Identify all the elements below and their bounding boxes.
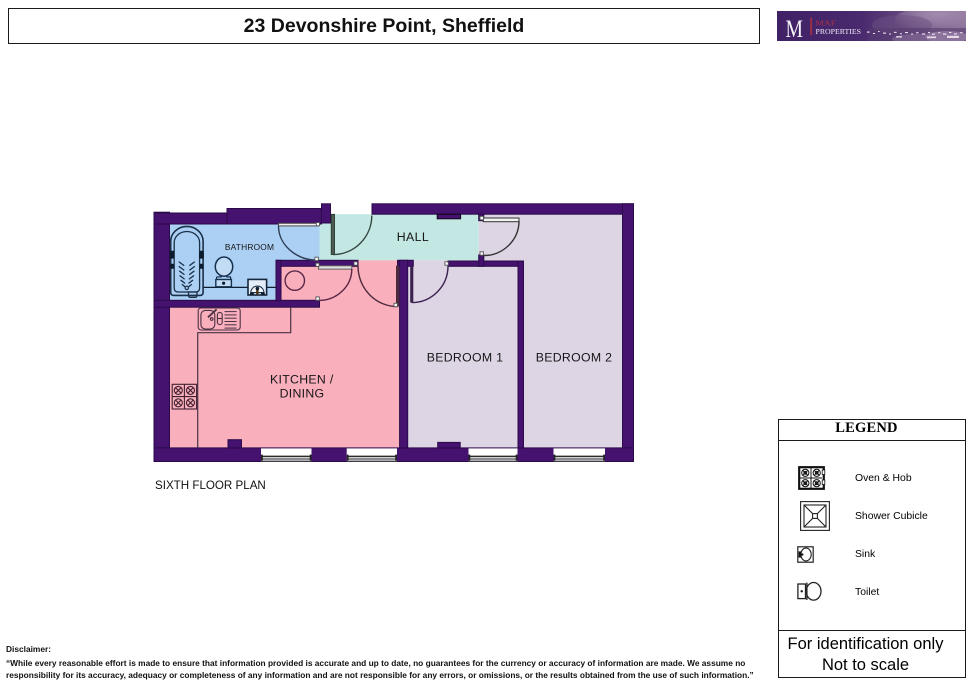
svg-text:BEDROOM 1: BEDROOM 1 — [427, 350, 504, 364]
svg-text:KITCHEN /: KITCHEN / — [270, 373, 334, 387]
svg-text:BEDROOM 2: BEDROOM 2 — [536, 350, 613, 364]
svg-text:DINING: DINING — [280, 386, 325, 400]
svg-text:BATHROOM: BATHROOM — [225, 242, 274, 252]
svg-text:HALL: HALL — [397, 230, 429, 244]
